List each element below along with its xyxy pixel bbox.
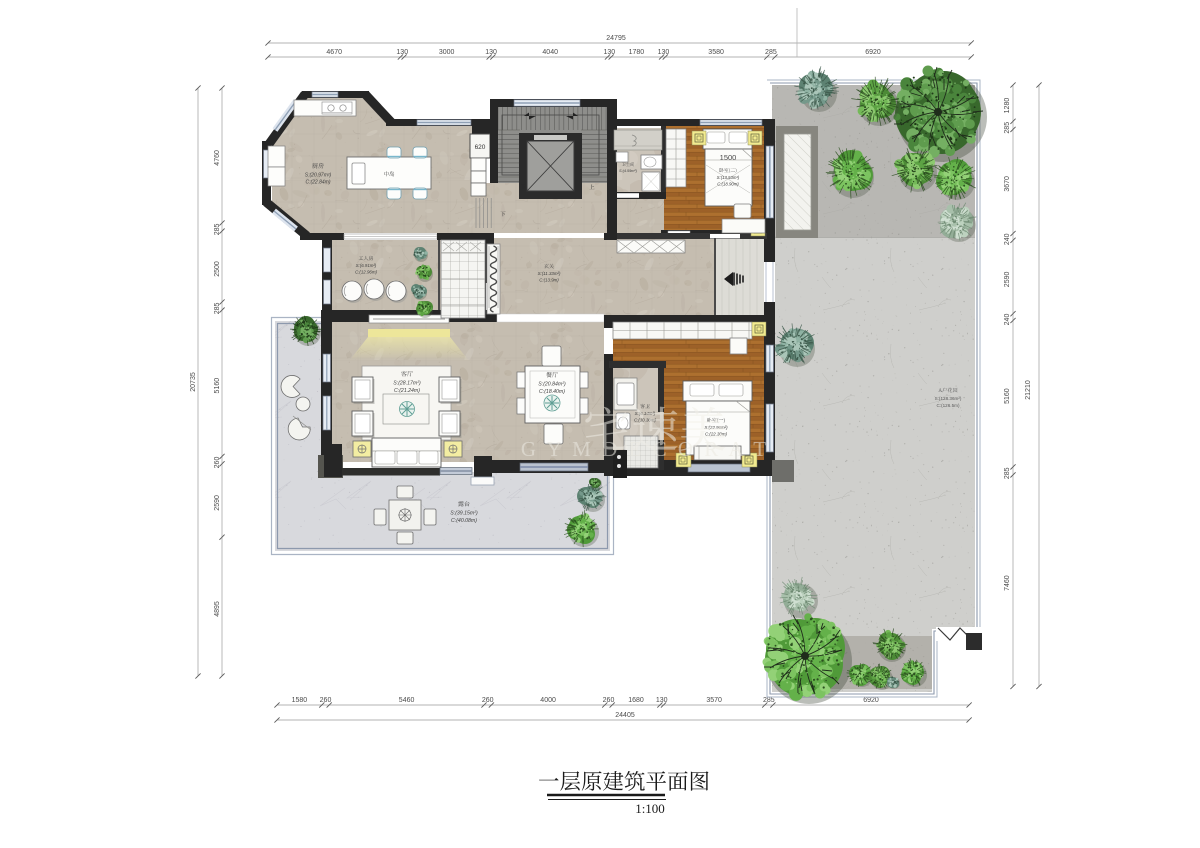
svg-text:S:(6.91m²): S:(6.91m²)	[356, 263, 377, 268]
svg-text:260: 260	[603, 697, 615, 704]
svg-text:130: 130	[658, 49, 670, 56]
svg-text:S:(128.36m²): S:(128.36m²)	[935, 396, 962, 401]
svg-text:130: 130	[656, 697, 668, 704]
svg-text:285: 285	[1004, 467, 1011, 479]
svg-text:6920: 6920	[865, 49, 881, 56]
svg-text:21210: 21210	[1025, 380, 1032, 400]
svg-text:240: 240	[1004, 314, 1011, 326]
svg-text:7460: 7460	[1004, 575, 1011, 591]
svg-text:2590: 2590	[214, 495, 221, 511]
svg-text:285: 285	[765, 49, 777, 56]
svg-text:240: 240	[1004, 233, 1011, 245]
svg-text:260: 260	[320, 697, 332, 704]
svg-text:260: 260	[214, 457, 221, 469]
svg-text:285: 285	[214, 303, 221, 315]
svg-text:4760: 4760	[214, 150, 221, 166]
svg-text:1:100: 1:100	[635, 801, 665, 816]
svg-text:2500: 2500	[214, 261, 221, 277]
svg-text:C:(126.5m): C:(126.5m)	[937, 403, 960, 408]
svg-text:C:(21.24m): C:(21.24m)	[394, 388, 420, 394]
svg-text:4000: 4000	[540, 697, 556, 704]
svg-text:G Y M D E C O R A T: G Y M D E C O R A T	[521, 437, 769, 461]
svg-text:20735: 20735	[190, 372, 197, 392]
svg-text:285: 285	[1004, 122, 1011, 134]
svg-text:S:(28.17m²): S:(28.17m²)	[393, 381, 421, 387]
svg-text:1780: 1780	[629, 49, 645, 56]
svg-text:1680: 1680	[628, 697, 644, 704]
svg-text:S:(20.84m²): S:(20.84m²)	[538, 382, 566, 388]
svg-text:6920: 6920	[863, 697, 879, 704]
svg-text:S:(4.59m²): S:(4.59m²)	[619, 169, 638, 173]
svg-text:130: 130	[604, 49, 616, 56]
svg-text:C:(18.40m): C:(18.40m)	[539, 389, 565, 395]
svg-text:2590: 2590	[1004, 272, 1011, 288]
svg-text:24795: 24795	[606, 35, 626, 42]
svg-text:S:(20.97m²): S:(20.97m²)	[305, 173, 332, 179]
svg-text:C:(40.08m): C:(40.08m)	[451, 518, 477, 524]
svg-text:C:(18.90m): C:(18.90m)	[717, 182, 739, 187]
svg-text:1500: 1500	[720, 153, 737, 162]
svg-text:S:(11.33m²): S:(11.33m²)	[538, 271, 561, 276]
svg-text:3000: 3000	[439, 49, 455, 56]
svg-text:S:(39.15m²): S:(39.15m²)	[450, 511, 478, 517]
svg-text:4895: 4895	[214, 601, 221, 617]
svg-text:130: 130	[396, 49, 408, 56]
svg-text:1580: 1580	[292, 697, 308, 704]
svg-text:24405: 24405	[615, 712, 635, 719]
svg-text:S:(13.53m²): S:(13.53m²)	[717, 175, 740, 180]
svg-text:5160: 5160	[214, 378, 221, 394]
svg-text:285: 285	[214, 224, 221, 236]
svg-text:5160: 5160	[1004, 388, 1011, 404]
svg-text:1280: 1280	[1004, 98, 1011, 114]
svg-text:5460: 5460	[399, 697, 415, 704]
svg-text:3570: 3570	[706, 697, 722, 704]
svg-text:130: 130	[485, 49, 497, 56]
svg-text:620: 620	[475, 144, 486, 151]
svg-text:4040: 4040	[542, 49, 558, 56]
svg-text:4670: 4670	[326, 49, 342, 56]
svg-text:C:(22.84m): C:(22.84m)	[305, 180, 330, 186]
svg-text:C:(22.30m): C:(22.30m)	[705, 432, 727, 437]
svg-text:C:(13.9m): C:(13.9m)	[539, 278, 559, 283]
svg-text:3580: 3580	[708, 49, 724, 56]
svg-text:3670: 3670	[1004, 176, 1011, 192]
svg-text:285: 285	[763, 697, 775, 704]
svg-text:C:(12.96m): C:(12.96m)	[355, 270, 377, 275]
svg-text:260: 260	[482, 697, 494, 704]
